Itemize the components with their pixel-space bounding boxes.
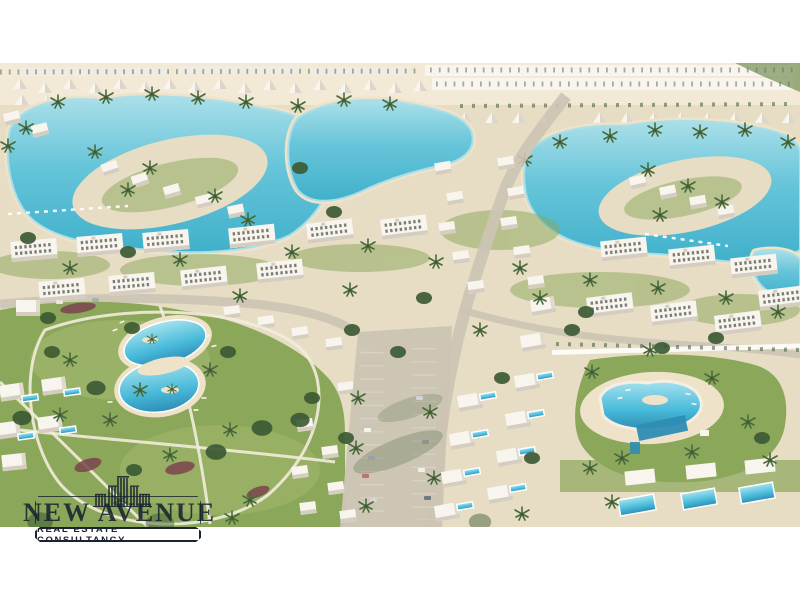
screenshot-root: NEW AVENUE REAL ESTATE CONSULTANCY <box>0 0 800 600</box>
tagline-banner: REAL ESTATE CONSULTANCY <box>35 527 201 542</box>
photo-area <box>0 63 800 535</box>
brand-name: NEW AVENUE <box>23 500 213 526</box>
kids-pool <box>630 442 640 454</box>
watermark-logo: NEW AVENUE REAL ESTATE CONSULTANCY <box>27 475 209 545</box>
